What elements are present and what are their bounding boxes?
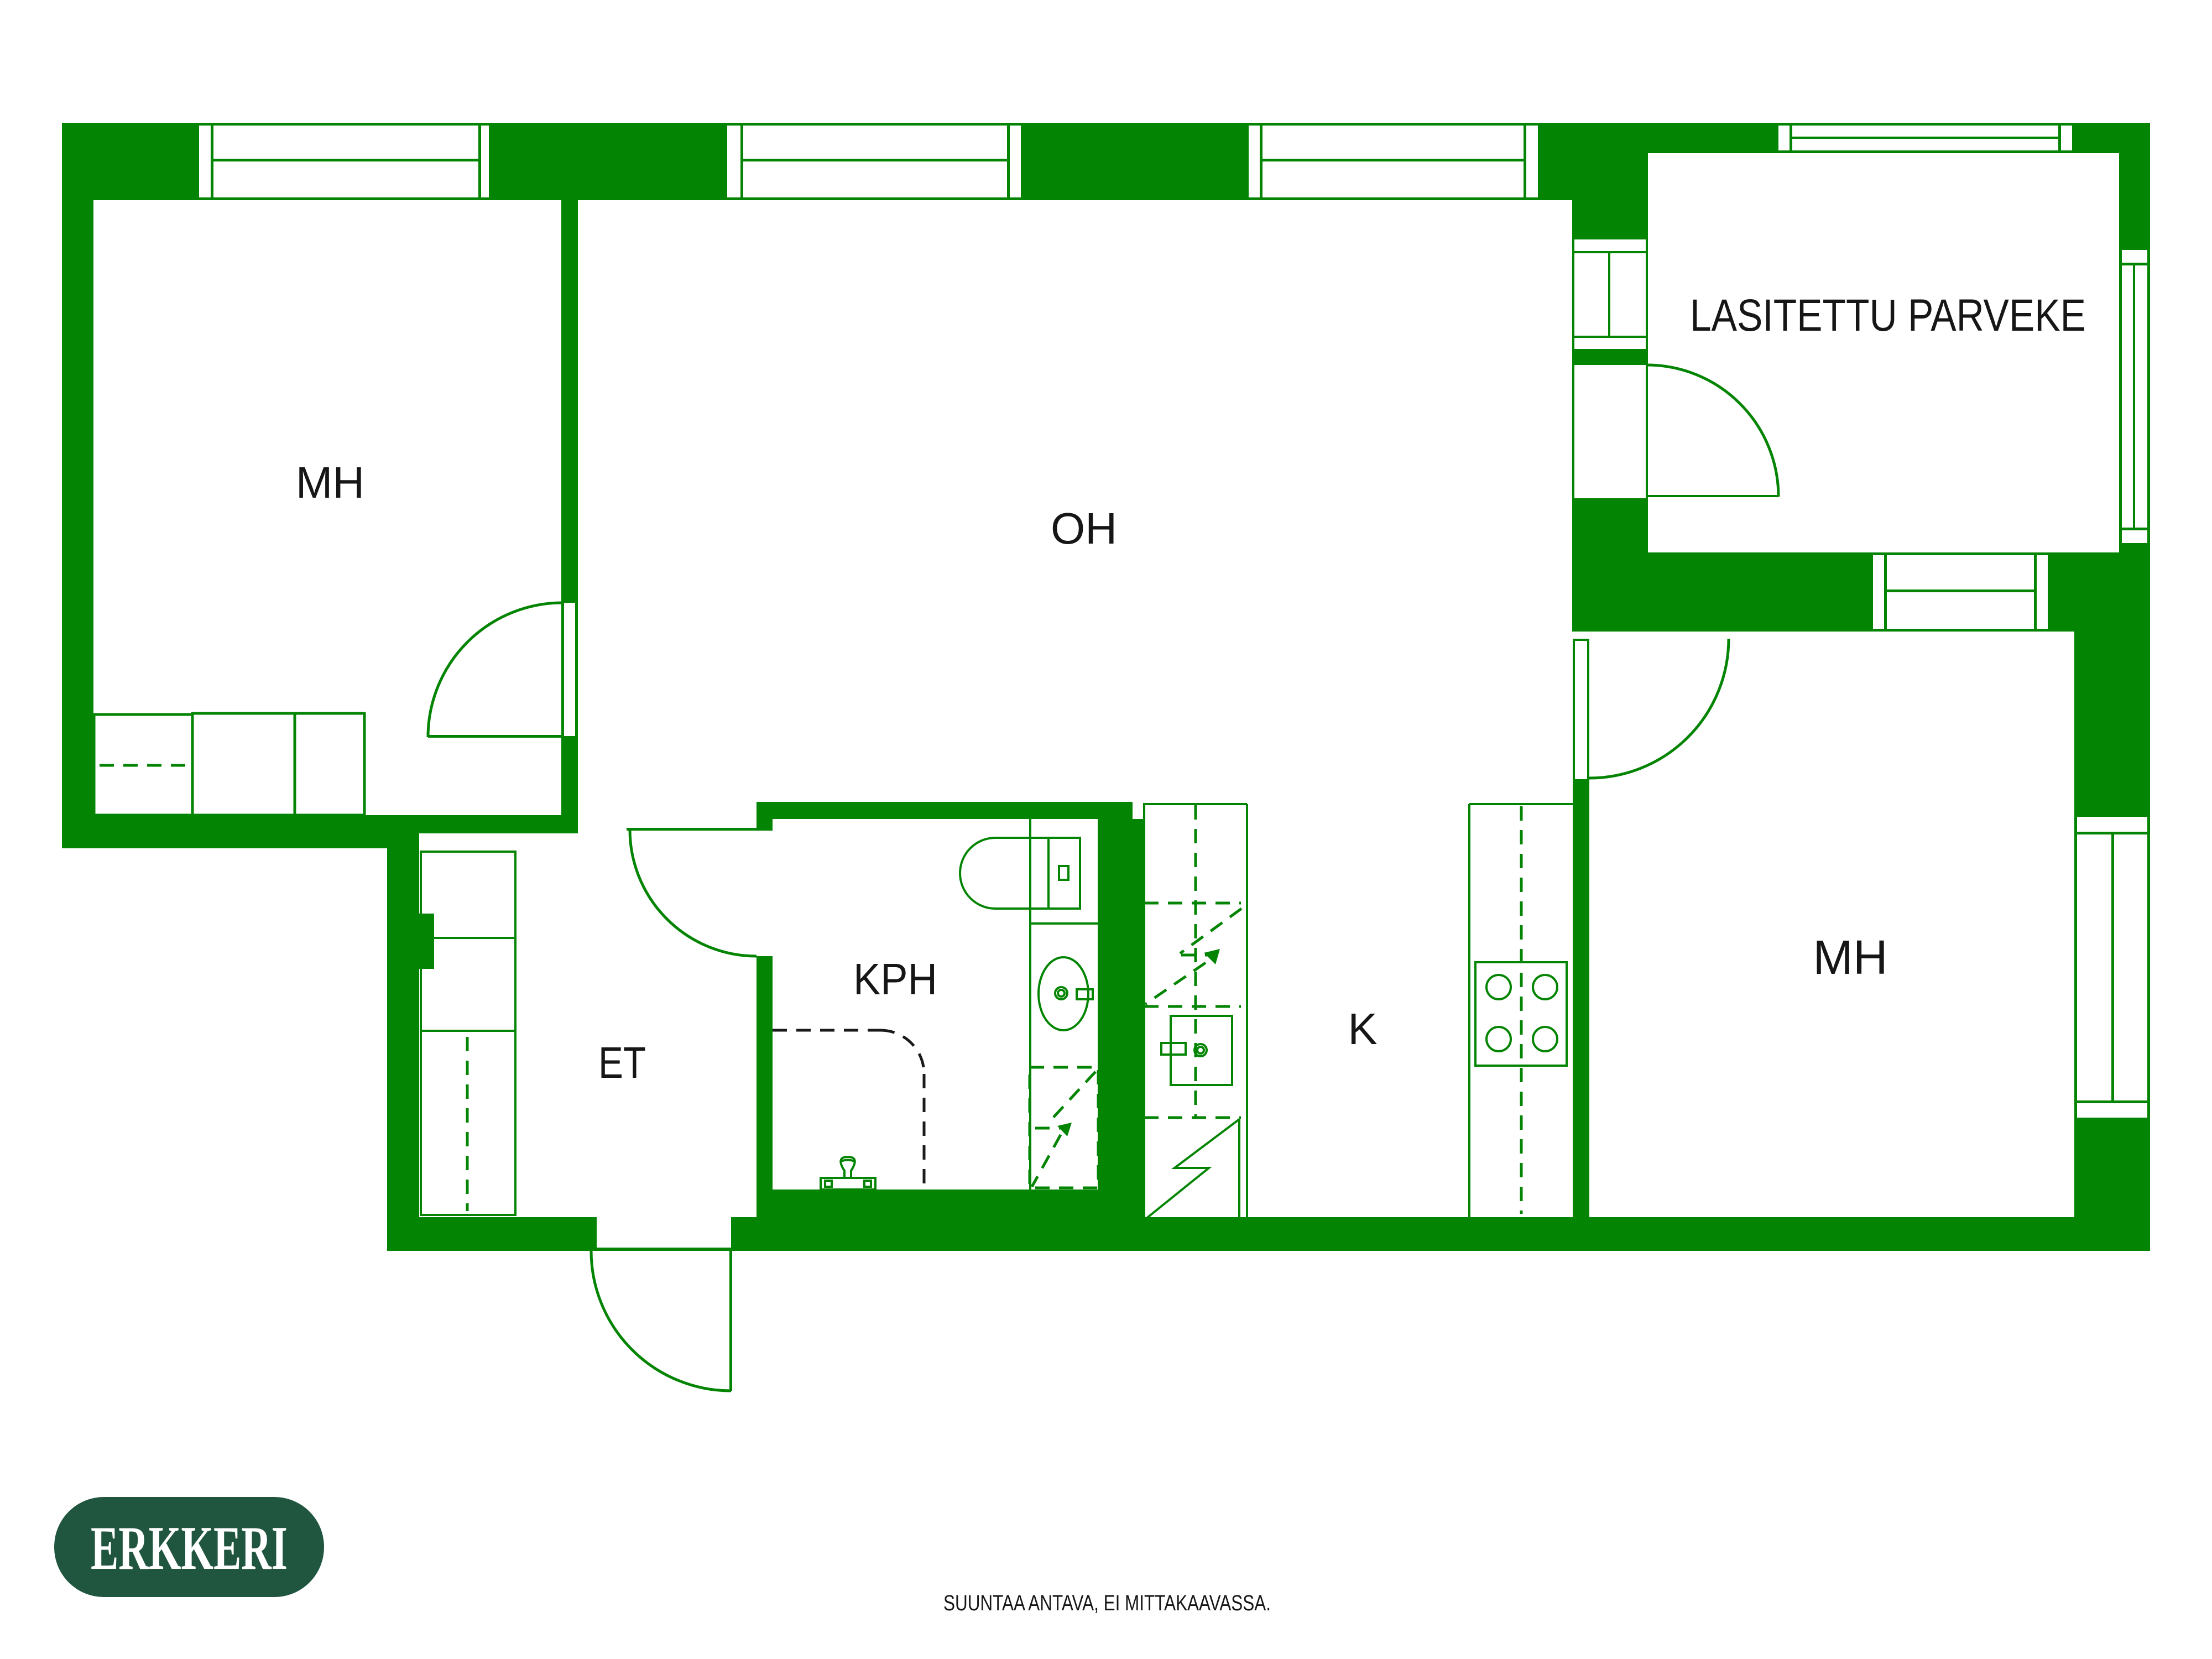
svg-text:MH: MH bbox=[1813, 931, 1887, 984]
svg-text:ET: ET bbox=[598, 1038, 646, 1087]
svg-text:OH: OH bbox=[1051, 504, 1117, 553]
svg-text:SUUNTAA ANTAVA, EI MITTAKAAVAS: SUUNTAA ANTAVA, EI MITTAKAAVASSA. bbox=[943, 1591, 1271, 1615]
svg-text:KPH: KPH bbox=[853, 954, 937, 1004]
svg-text:ERKKERI: ERKKERI bbox=[91, 1514, 288, 1583]
svg-text:MH: MH bbox=[296, 458, 364, 507]
svg-text:K: K bbox=[1348, 1004, 1377, 1053]
svg-text:LASITETTU PARVEKE: LASITETTU PARVEKE bbox=[1690, 290, 2086, 341]
